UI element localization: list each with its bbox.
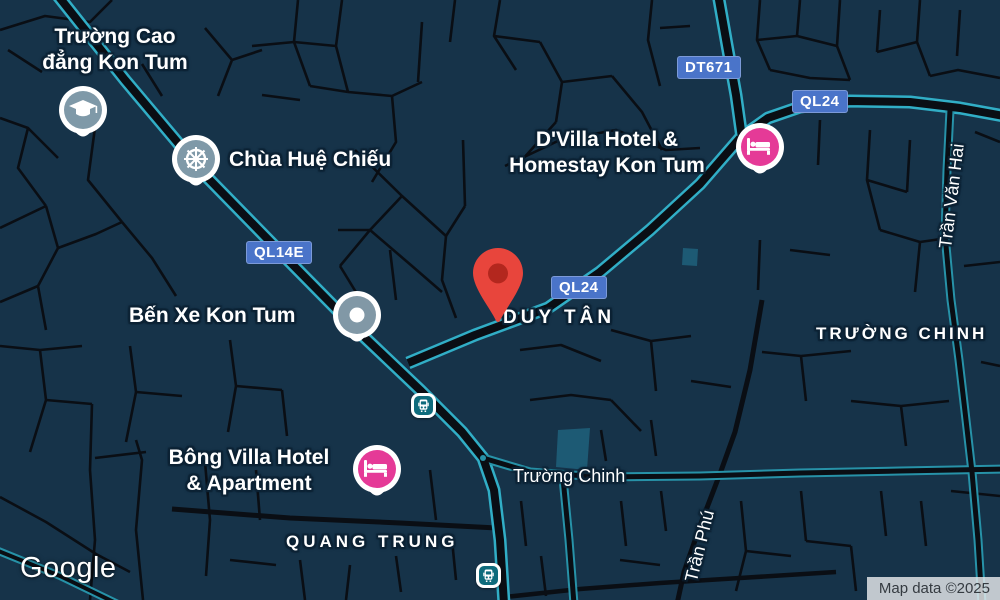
street-line: [520, 345, 601, 361]
street-line: [30, 350, 46, 452]
street-line: [95, 452, 146, 458]
poi-label-dvilla-hotel[interactable]: D'Villa Hotel & Homestay Kon Tum: [478, 127, 736, 179]
street-line: [877, 10, 880, 52]
street-line: [930, 70, 1000, 78]
land-area-patch: [682, 248, 698, 266]
street-line: [660, 26, 690, 28]
street-line: [126, 346, 136, 442]
land-area-patch: [556, 428, 590, 470]
street-line: [611, 330, 691, 341]
street-line: [806, 541, 851, 546]
street-line: [648, 0, 660, 86]
street-line: [300, 560, 305, 600]
street-line: [494, 36, 540, 42]
route-badge-ql24: QL24: [551, 276, 607, 299]
street-line: [390, 250, 396, 300]
street-line: [0, 118, 58, 158]
street-line: [562, 76, 612, 82]
highway-casing-line: [55, 0, 504, 600]
street-line: [917, 0, 930, 76]
street-line: [601, 430, 606, 461]
street-line: [463, 140, 465, 206]
street-line: [801, 491, 806, 541]
street-line: [540, 42, 562, 122]
poi-label-bong-villa-hotel[interactable]: Bông Villa Hotel & Apartment: [146, 445, 352, 497]
street-line: [620, 560, 660, 565]
area-label-quang-trung: QUANG TRUNG: [286, 532, 458, 552]
street-line: [348, 82, 422, 96]
street-line: [762, 351, 851, 356]
place-dot-icon: [350, 308, 365, 323]
dvilla-hotel-pin[interactable]: [734, 121, 786, 183]
street-line: [58, 222, 122, 248]
dharma-wheel-icon: [184, 147, 208, 171]
street-line: [262, 95, 300, 100]
street-line: [867, 180, 907, 192]
street-line: [136, 392, 182, 396]
street-line: [346, 565, 350, 600]
street-line: [336, 0, 348, 92]
street-line: [915, 242, 920, 292]
street-line: [446, 206, 465, 236]
poi-label-line: Homestay Kon Tum: [478, 153, 736, 179]
street-line: [205, 28, 262, 60]
street-line: [0, 206, 46, 228]
bong-villa-hotel-pin[interactable]: [351, 443, 403, 505]
street-line: [218, 60, 232, 96]
street-line: [38, 206, 58, 330]
poi-label-line: Trường Cao: [24, 24, 206, 50]
street-line: [757, 36, 837, 46]
poi-label-pagoda[interactable]: Chùa Huệ Chiếu: [229, 147, 391, 173]
poi-label-bus-station[interactable]: Bến Xe Kon Tum: [129, 303, 295, 329]
bus-station-pin[interactable]: [331, 289, 383, 351]
route-badge-ql14e: QL14E: [246, 241, 312, 264]
street-line: [430, 470, 436, 520]
street-line: [801, 356, 806, 401]
street-line: [651, 341, 656, 391]
street-line: [691, 381, 731, 387]
street-line: [790, 250, 830, 255]
school-pin[interactable]: [57, 84, 109, 146]
street-line: [837, 0, 850, 80]
street-line: [521, 501, 526, 546]
poi-label-line: & Apartment: [146, 471, 352, 497]
area-label-truong-chinh: TRƯỜNG CHINH: [816, 324, 987, 344]
street-line: [310, 86, 348, 92]
street-line: [881, 491, 886, 536]
street-line: [46, 400, 92, 404]
street-line: [370, 230, 442, 292]
street-line: [746, 551, 791, 556]
street-label-truong-chinh: Trường Chinh: [513, 466, 625, 487]
street-line: [136, 440, 143, 600]
street-line: [0, 286, 38, 302]
road-line: [505, 572, 836, 597]
street-line: [981, 362, 1000, 366]
street-line: [921, 501, 926, 546]
street-line: [818, 120, 820, 165]
street-line: [18, 128, 46, 206]
street-line: [122, 222, 176, 296]
street-line: [530, 395, 611, 400]
street-line: [957, 10, 960, 56]
road-line: [172, 509, 497, 528]
street-line: [396, 556, 401, 592]
street-line: [418, 22, 422, 82]
road-junction-dot: [480, 455, 486, 461]
street-line: [661, 491, 666, 531]
street-line: [611, 400, 641, 431]
street-line: [494, 0, 516, 70]
street-line: [228, 340, 236, 432]
street-line: [621, 501, 626, 546]
street-line: [877, 42, 917, 52]
street-line: [797, 0, 800, 36]
street-line: [758, 240, 760, 290]
map-attribution: Map data ©2025: [867, 577, 1000, 600]
street-line: [851, 546, 856, 591]
street-line: [450, 0, 455, 42]
street-line: [0, 346, 82, 350]
street-line: [651, 420, 656, 456]
map-canvas[interactable]: Trường Cao đẳng Kon Tum Chùa Huệ Chiếu D…: [0, 0, 1000, 600]
poi-label-college[interactable]: Trường Cao đẳng Kon Tum: [24, 24, 206, 76]
street-line: [757, 0, 770, 70]
poi-label-line: D'Villa Hotel &: [478, 127, 736, 153]
street-line: [975, 132, 1000, 142]
poi-label-line: đẳng Kon Tum: [24, 50, 206, 76]
destination-red-pin-icon[interactable]: [473, 248, 523, 323]
street-line: [282, 390, 287, 436]
route-badge-dt671: DT671: [677, 56, 741, 79]
route-badge-ql24-ne: QL24: [792, 90, 848, 113]
street-line: [442, 236, 456, 318]
street-line: [541, 556, 546, 596]
poi-label-line: Bông Villa Hotel: [146, 445, 352, 471]
street-line: [294, 42, 336, 46]
street-line: [770, 70, 850, 80]
highway-line: [55, 0, 504, 600]
pagoda-pin[interactable]: [170, 133, 222, 195]
street-line: [907, 140, 910, 192]
bus-stop-icon[interactable]: [411, 393, 436, 418]
street-line: [252, 42, 294, 46]
street-line: [964, 262, 1000, 266]
street-line: [851, 401, 949, 406]
bus-stop-icon[interactable]: [476, 563, 501, 588]
street-line: [230, 560, 276, 565]
google-logo[interactable]: Google: [20, 552, 117, 585]
street-line: [901, 406, 906, 446]
street-line: [236, 386, 282, 390]
